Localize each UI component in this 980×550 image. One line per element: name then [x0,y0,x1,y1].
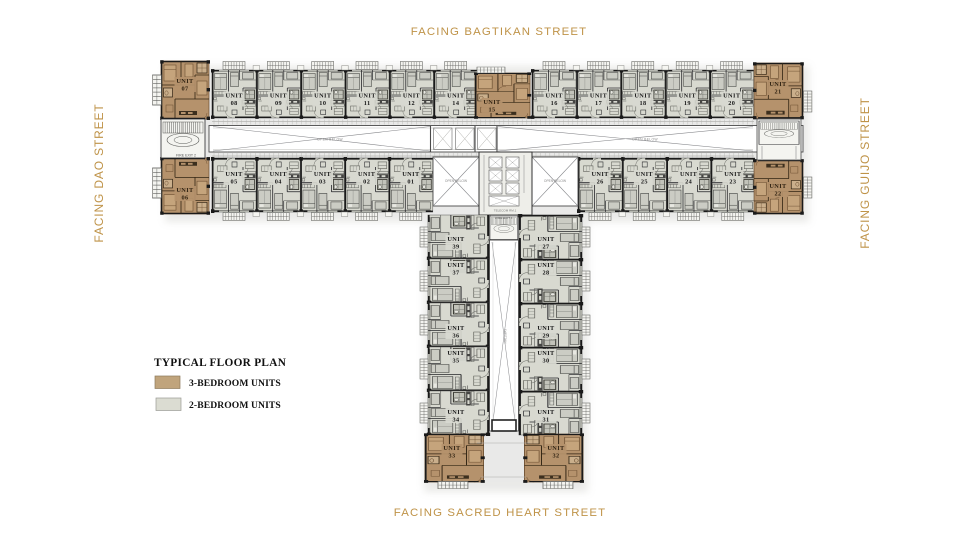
svg-text:20: 20 [728,100,735,107]
svg-text:03: 03 [319,179,326,186]
svg-text:02: 02 [363,179,370,186]
svg-text:FACING BAGTIKAN STREET: FACING BAGTIKAN STREET [411,26,588,38]
svg-text:UNIT: UNIT [537,325,555,332]
svg-text:UNIT: UNIT [547,445,565,452]
svg-text:HALLWAY: HALLWAY [504,328,508,344]
svg-text:23: 23 [729,179,736,186]
svg-text:UNIT: UNIT [723,93,741,100]
svg-text:UNIT: UNIT [636,171,654,178]
svg-text:UNIT: UNIT [591,171,609,178]
svg-text:UNIT: UNIT [634,93,652,100]
svg-text:09: 09 [275,100,282,107]
svg-text:TYPICAL FLOOR PLAN: TYPICAL FLOOR PLAN [154,357,287,369]
svg-text:UNIT: UNIT [447,262,465,269]
svg-text:22: 22 [774,191,781,198]
svg-text:07: 07 [181,86,188,93]
svg-text:2-BEDROOM UNITS: 2-BEDROOM UNITS [189,400,281,411]
svg-text:3-BEDROOM UNITS: 3-BEDROOM UNITS [189,378,281,389]
svg-text:UNIT: UNIT [270,93,288,100]
svg-text:FACING SACRED HEART STREET: FACING SACRED HEART STREET [394,507,606,519]
svg-text:14: 14 [452,100,460,107]
svg-text:UNIT: UNIT [769,81,787,88]
svg-text:UNIT: UNIT [680,171,698,178]
svg-text:36: 36 [452,333,459,340]
svg-text:UNIT: UNIT [537,350,555,357]
svg-text:35: 35 [452,358,459,365]
svg-text:OPEN BELOW: OPEN BELOW [544,179,567,183]
svg-text:UNIT: UNIT [447,93,465,100]
svg-text:TELECOM RM.1: TELECOM RM.1 [494,209,517,213]
svg-text:UNIT: UNIT [537,409,555,416]
svg-text:12: 12 [408,100,415,107]
svg-text:39: 39 [452,244,459,251]
svg-text:UNIT: UNIT [176,78,194,85]
svg-text:32: 32 [552,453,559,460]
svg-text:17: 17 [595,100,602,107]
svg-text:04: 04 [275,179,283,186]
svg-text:FIRE EXIT 1: FIRE EXIT 1 [495,216,513,220]
svg-text:UNIT: UNIT [483,99,501,106]
svg-text:21: 21 [774,89,781,96]
svg-text:31: 31 [542,417,549,424]
svg-text:UNIT: UNIT [358,93,376,100]
svg-text:25: 25 [641,179,648,186]
svg-text:UNIT: UNIT [679,93,697,100]
svg-text:OPEN BELOW: OPEN BELOW [317,138,343,142]
svg-text:30: 30 [542,358,549,365]
svg-text:UNIT: UNIT [447,236,465,243]
svg-text:37: 37 [452,270,459,277]
svg-text:UNIT: UNIT [537,236,555,243]
svg-text:33: 33 [448,453,455,460]
svg-text:FACING DAO STREET: FACING DAO STREET [92,103,106,242]
svg-text:OPEN BELOW: OPEN BELOW [632,138,658,142]
svg-text:28: 28 [542,270,549,277]
svg-text:16: 16 [551,100,558,107]
svg-text:34: 34 [452,417,460,424]
svg-text:08: 08 [231,100,238,107]
svg-text:UNIT: UNIT [403,93,421,100]
svg-text:UNIT: UNIT [447,350,465,357]
svg-text:24: 24 [685,179,693,186]
svg-text:UNIT: UNIT [537,262,555,269]
svg-text:UNIT: UNIT [447,325,465,332]
svg-text:UNIT: UNIT [270,171,288,178]
svg-text:UNIT: UNIT [447,409,465,416]
svg-text:15: 15 [488,107,495,114]
svg-text:18: 18 [639,100,646,107]
svg-text:27: 27 [542,244,549,251]
svg-text:UNIT: UNIT [176,187,194,194]
svg-text:26: 26 [597,179,604,186]
svg-text:UNIT: UNIT [314,171,332,178]
svg-text:UNIT: UNIT [402,171,420,178]
svg-text:10: 10 [319,100,326,107]
svg-text:19: 19 [684,100,691,107]
svg-text:UNIT: UNIT [225,171,243,178]
svg-text:01: 01 [407,179,414,186]
svg-text:UNIT: UNIT [724,171,742,178]
svg-text:UNIT: UNIT [443,445,461,452]
svg-text:UNIT: UNIT [546,93,564,100]
svg-text:UNIT: UNIT [225,93,243,100]
svg-text:05: 05 [231,179,238,186]
svg-text:29: 29 [542,333,549,340]
svg-text:11: 11 [364,100,371,107]
svg-text:FACING GUIJO STREET: FACING GUIJO STREET [858,97,872,249]
svg-text:UNIT: UNIT [769,183,787,190]
svg-text:UNIT: UNIT [358,171,376,178]
svg-text:UNIT: UNIT [590,93,608,100]
svg-text:OPEN BELOW: OPEN BELOW [445,179,468,183]
svg-text:06: 06 [181,195,188,202]
svg-text:UNIT: UNIT [314,93,332,100]
svg-text:FIRE EXIT 2: FIRE EXIT 2 [176,154,196,158]
